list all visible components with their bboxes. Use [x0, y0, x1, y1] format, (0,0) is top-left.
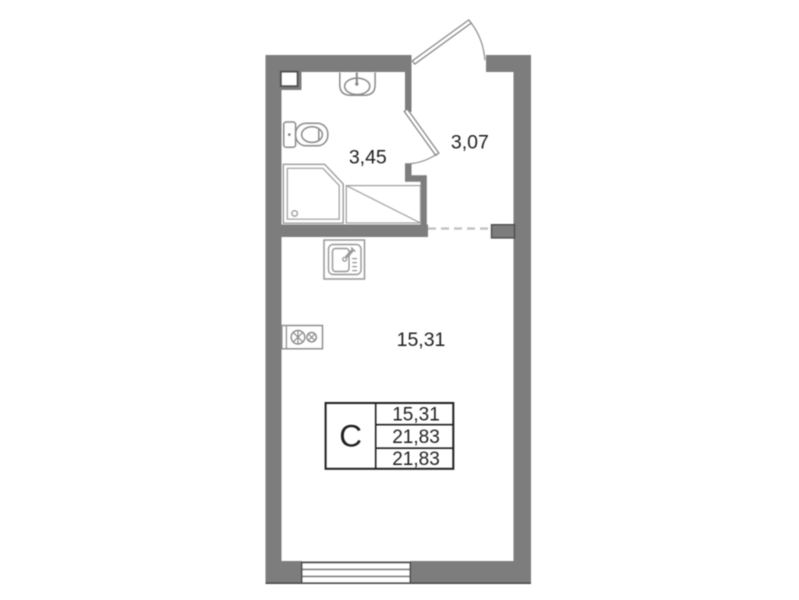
svg-text:15,31: 15,31: [392, 404, 440, 425]
svg-text:3,07: 3,07: [451, 131, 489, 153]
svg-text:21,83: 21,83: [392, 427, 440, 448]
svg-text:C: C: [339, 418, 362, 454]
svg-text:3,45: 3,45: [349, 147, 387, 169]
svg-text:15,31: 15,31: [397, 329, 446, 351]
svg-text:21,83: 21,83: [392, 449, 440, 470]
